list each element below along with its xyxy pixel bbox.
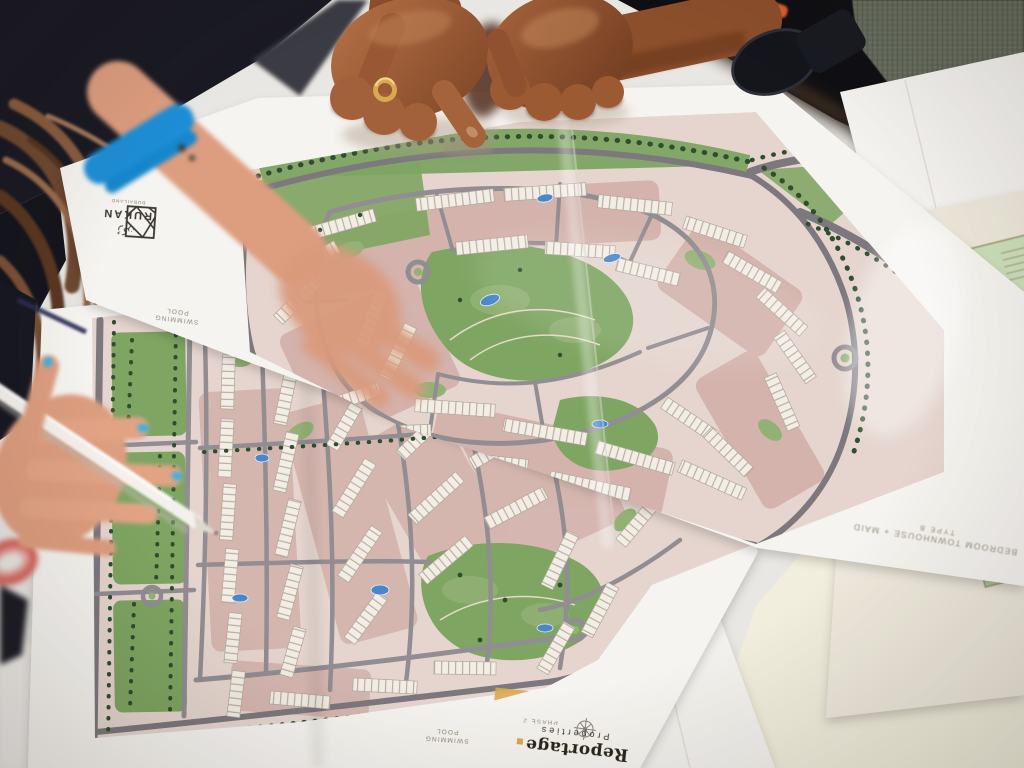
rukan-logo: رُكن RUKAN DUBAILAND <box>97 196 158 239</box>
wrist-tattoo <box>178 144 186 152</box>
gold-mark <box>517 738 524 745</box>
photo-scene: رُكن RUKAN DUBAILAND SWIMMING POOL SWIMM… <box>0 0 1024 768</box>
rukan-tagline: DUBAILAND <box>111 197 146 205</box>
rukan-logo-icon <box>125 205 157 239</box>
